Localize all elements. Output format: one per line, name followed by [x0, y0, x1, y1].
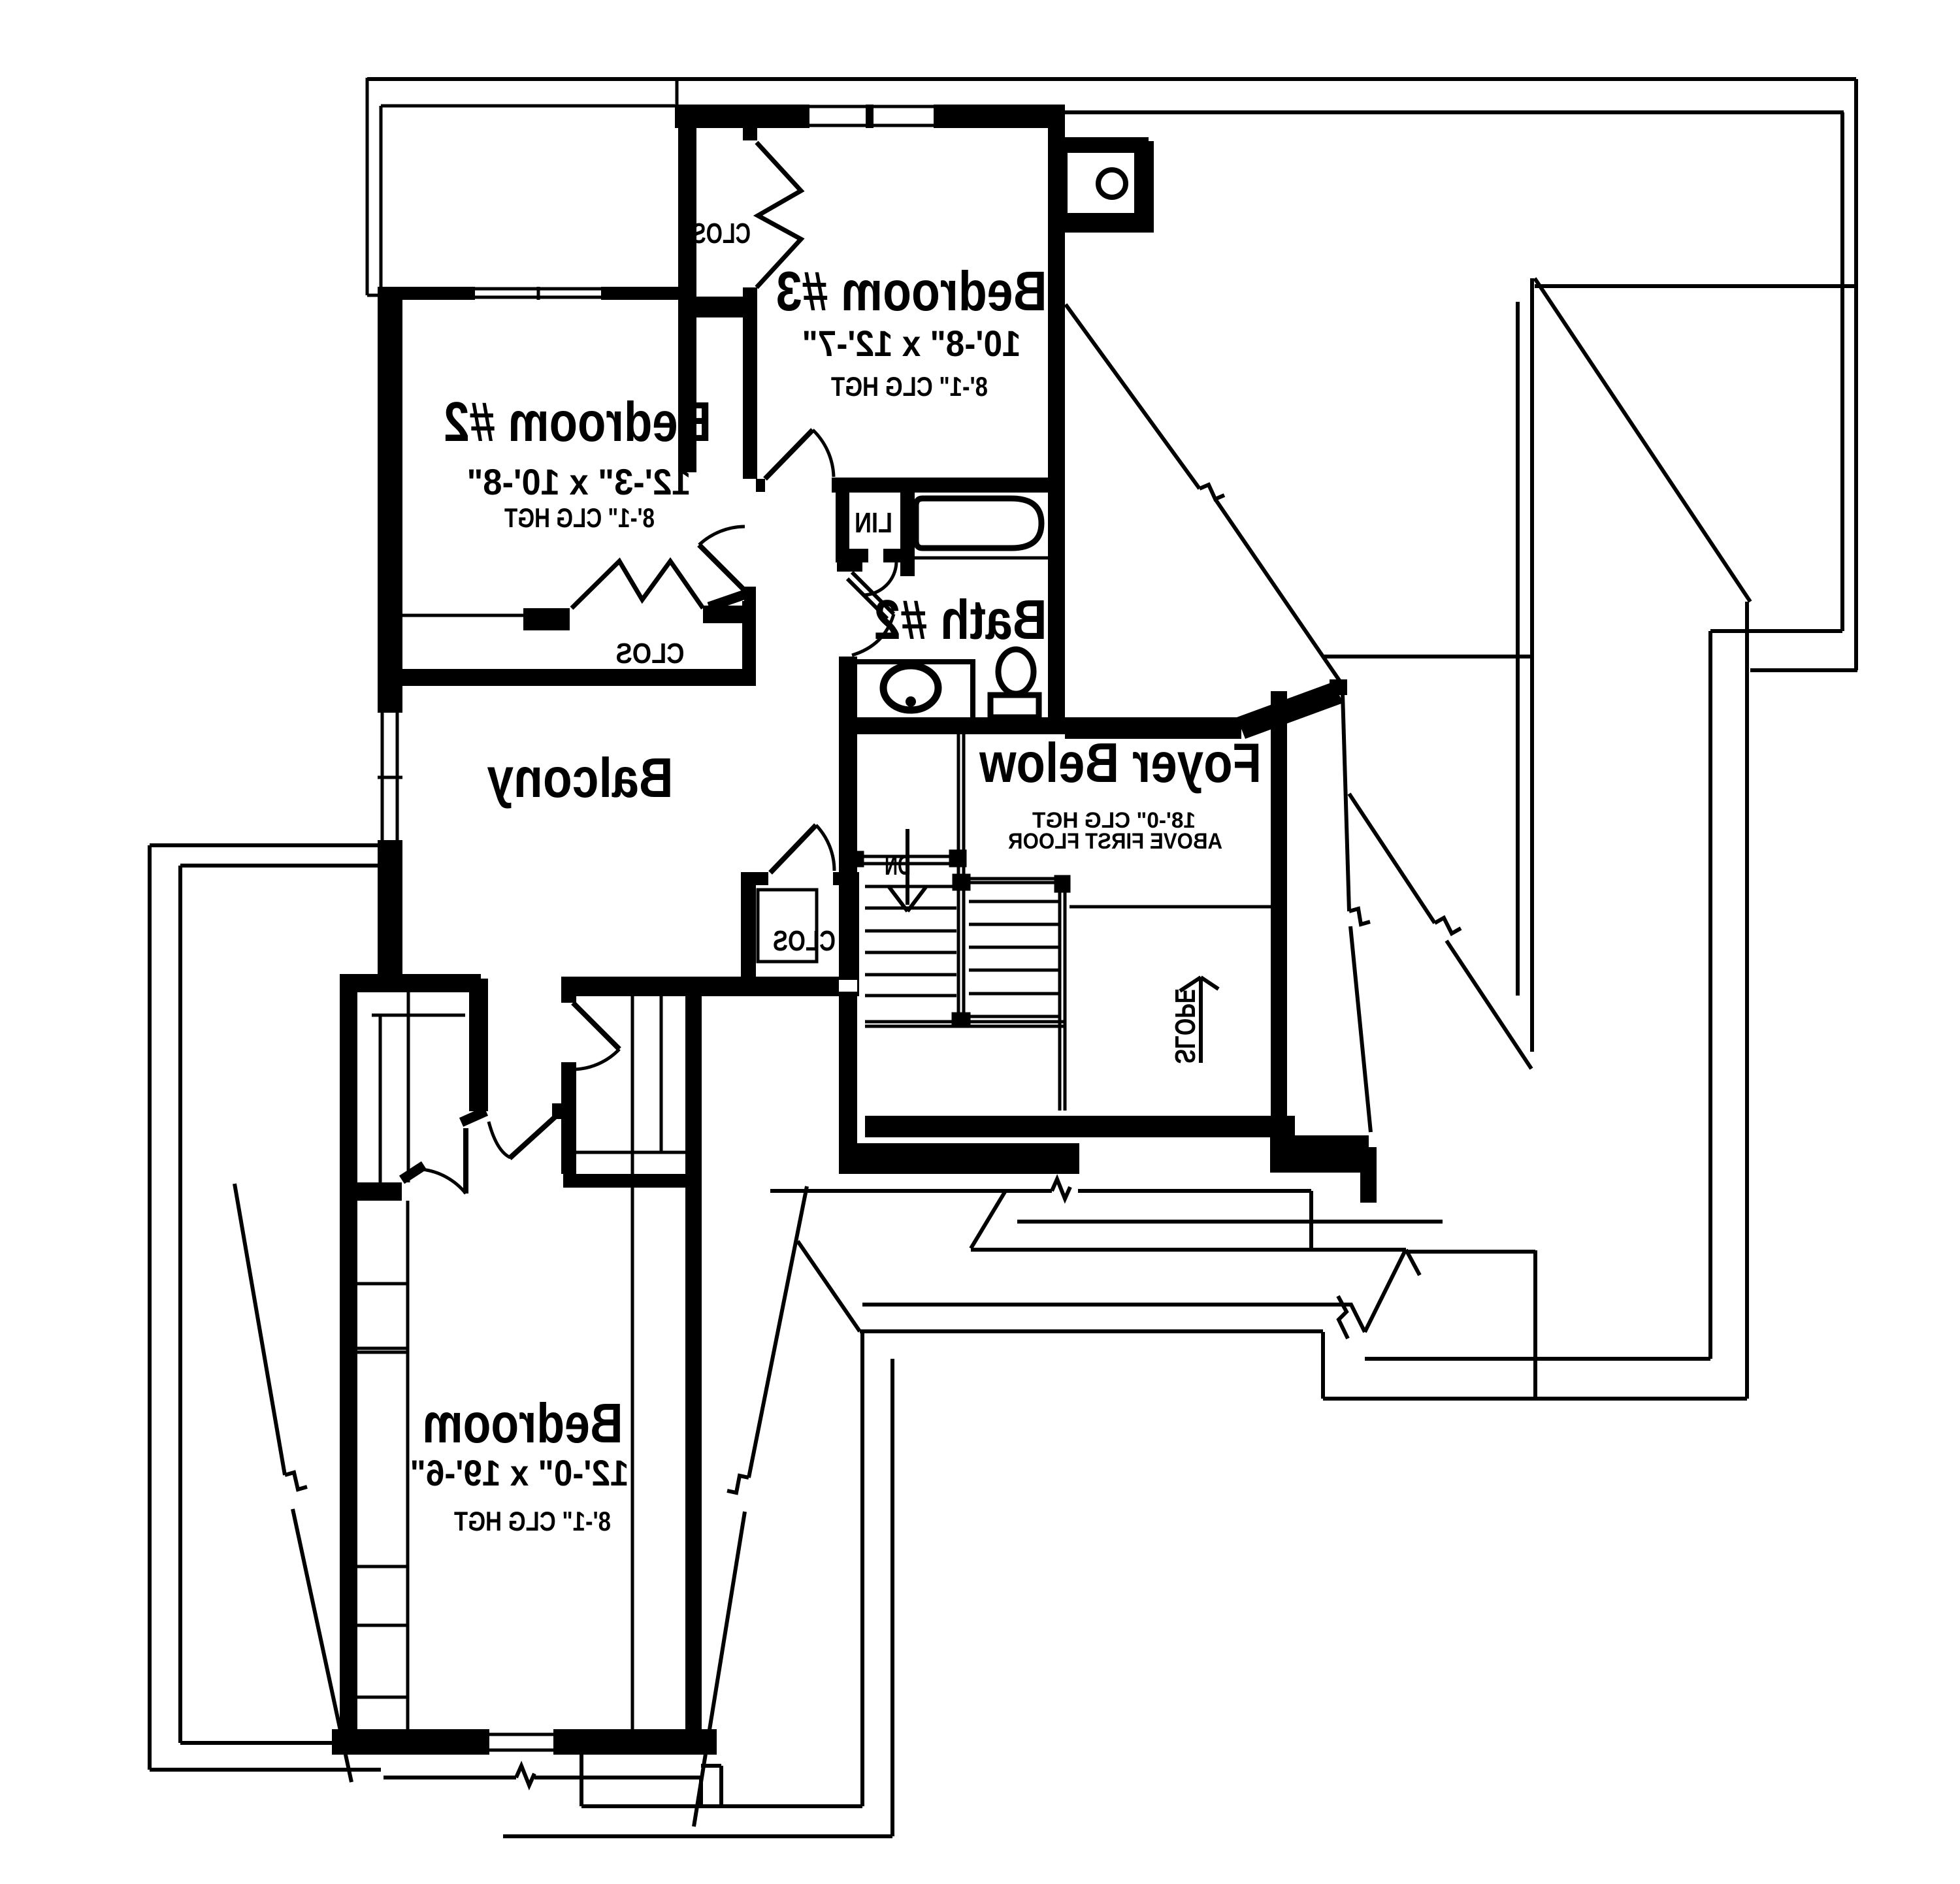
- svg-text:Bedroom #3: Bedroom #3: [776, 261, 1047, 323]
- svg-text:CLOS: CLOS: [616, 638, 685, 670]
- svg-text:Foyer Below: Foyer Below: [979, 732, 1262, 794]
- svg-text:8'-1" CLG HGT: 8'-1" CLG HGT: [454, 1506, 611, 1536]
- svg-text:10'-8" x 12'-7": 10'-8" x 12'-7": [802, 323, 1021, 364]
- svg-text:8'-1" CLG HGT: 8'-1" CLG HGT: [504, 502, 655, 533]
- svg-text:Bath #2: Bath #2: [874, 589, 1047, 651]
- svg-text:Bedroom #2: Bedroom #2: [444, 391, 711, 453]
- svg-text:Bedroom: Bedroom: [423, 1393, 623, 1455]
- svg-text:ABOVE FIRST FLOOR: ABOVE FIRST FLOOR: [1008, 829, 1222, 854]
- svg-text:12'-3" x 10'-8": 12'-3" x 10'-8": [467, 461, 691, 502]
- svg-text:Balcony: Balcony: [487, 747, 674, 809]
- svg-text:CLOS: CLOS: [692, 218, 751, 250]
- svg-text:LIN: LIN: [855, 507, 892, 539]
- svg-text:8'-1" CLG HGT: 8'-1" CLG HGT: [831, 371, 988, 402]
- svg-text:CLOS: CLOS: [773, 925, 836, 957]
- svg-text:DN: DN: [885, 849, 911, 881]
- svg-text:12'-0" x 19'-6": 12'-0" x 19'-6": [410, 1452, 629, 1493]
- svg-text:SLOPE: SLOPE: [1169, 989, 1201, 1064]
